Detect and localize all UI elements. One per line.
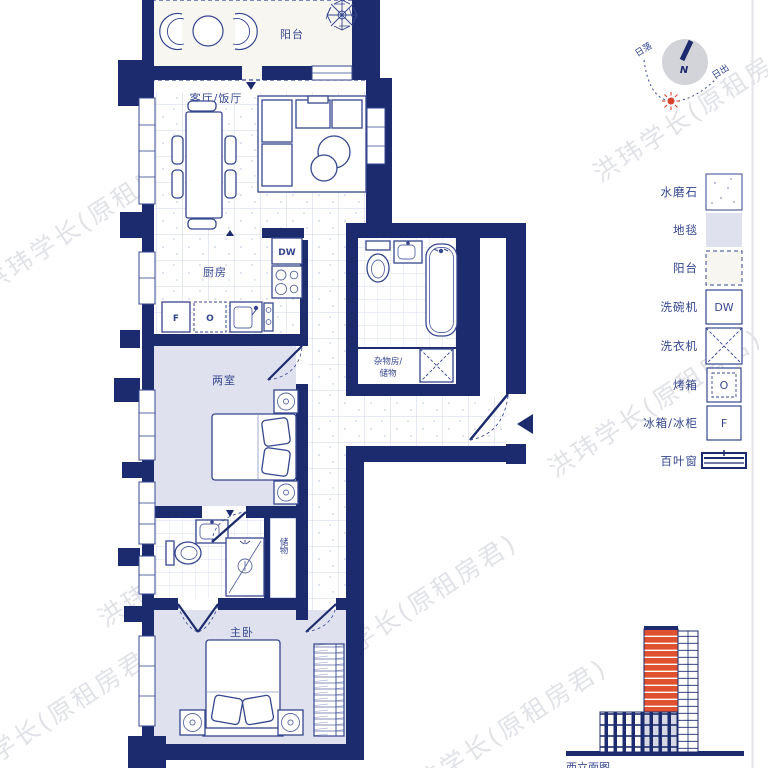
elevation-caption: 西立面图 <box>566 760 610 768</box>
annex <box>678 631 698 752</box>
legend-label: 冰箱/冰柜 <box>643 416 698 430</box>
wall-master-bottom <box>142 744 364 760</box>
legend-label: 地毯 <box>673 223 698 237</box>
legend-label: 阳台 <box>673 261 698 275</box>
balcony-swatch <box>706 251 742 285</box>
highlighted-floors <box>644 629 678 712</box>
fridge-box-letter: F <box>721 417 727 430</box>
wall-top <box>122 66 242 80</box>
pillow <box>261 447 290 476</box>
terrazzo-swatch <box>706 174 742 210</box>
wall-kitchen-stub <box>262 228 304 238</box>
sofa <box>258 96 366 192</box>
kitchen-sink-icon <box>230 302 262 332</box>
wall-master-top <box>142 598 178 610</box>
oven-icon: O <box>194 302 226 332</box>
pillow <box>242 695 274 725</box>
closet-floor <box>270 518 296 598</box>
bathroom-sink-icon <box>394 241 422 263</box>
window-master <box>139 636 155 726</box>
wall-closet-divider <box>264 518 270 598</box>
bathtub-icon <box>426 244 457 336</box>
pillow <box>261 417 290 446</box>
wall-corridor-bottom <box>346 446 526 462</box>
dining-chair <box>188 219 216 229</box>
dining-chair <box>172 136 183 164</box>
fridge-icon: F <box>162 302 190 332</box>
wall-jut <box>120 212 142 238</box>
patio-table <box>193 16 223 46</box>
sunset-label: 日落 <box>633 40 655 60</box>
window-bedroom2-lower <box>139 482 155 544</box>
hall-floor <box>308 236 346 610</box>
closet: 储物 <box>278 537 288 556</box>
tower-base-shade <box>644 712 678 752</box>
nightstand-lamp-icon <box>274 390 298 413</box>
wall-bath-right <box>456 238 480 396</box>
wall-bedroom2-top <box>142 334 308 346</box>
entry-arrow-icon <box>517 414 533 434</box>
fridge-letter: F <box>173 314 179 324</box>
floorplan-page: 洪玮学长(原租房君) 洪玮学长(原租房君) 洪玮学长(原租房君) 洪玮学长(原租… <box>0 0 768 768</box>
oven-letter: O <box>206 314 214 324</box>
master-label: 主卧 <box>230 626 254 639</box>
side-table <box>311 155 337 181</box>
podium <box>600 712 644 752</box>
shower-icon <box>226 538 264 596</box>
dishwasher-letter: DW <box>278 248 295 258</box>
dining-chair <box>172 170 183 198</box>
utility-label-line1: 杂物房/ <box>374 356 403 367</box>
dining-chair <box>188 101 216 111</box>
watermark-text: 洪玮学长(原租房君) <box>388 653 613 768</box>
wall-bedroom2-right <box>296 334 308 346</box>
oven-box: O <box>707 368 741 402</box>
legend-label: 洗衣机 <box>661 339 699 353</box>
wall-top <box>262 66 312 80</box>
legend-item-dishwasher: 洗碗机 DW <box>661 290 743 324</box>
bed <box>212 414 296 480</box>
legend: 水磨石 地毯 阳台 洗碗机 DW 洗衣机 <box>643 174 746 468</box>
window-balcony-band <box>312 66 352 80</box>
wall-top <box>352 66 380 80</box>
wall-utility-bottom <box>346 384 480 396</box>
pillow <box>211 695 243 725</box>
kitchen-cabinet <box>264 303 273 331</box>
compass-north-label: N <box>680 65 689 76</box>
kitchen-label: 厨房 <box>203 266 227 279</box>
wall-ensuite-top <box>246 506 308 518</box>
wall-master-right <box>346 610 364 750</box>
utility-label-line2: 储物 <box>379 368 397 379</box>
wall-jut <box>114 378 140 402</box>
headboard <box>203 728 283 736</box>
window-living-right <box>367 108 385 164</box>
legend-item-balcony: 阳台 <box>673 251 742 285</box>
wall-hall-right <box>346 462 364 612</box>
wardrobe-icon <box>314 644 344 736</box>
legend-label: 烤箱 <box>673 378 698 392</box>
balcony-label: 阳台 <box>280 27 304 41</box>
nightstand-lamp-icon <box>180 710 205 735</box>
wall-jut <box>120 330 140 348</box>
legend-label: 洗碗机 <box>661 300 699 314</box>
legend-item-terrazzo: 水磨石 <box>661 174 743 210</box>
window-living-left <box>139 98 155 204</box>
dining-chair <box>225 136 236 164</box>
nightstand-lamp-icon <box>274 481 298 504</box>
wall-jut <box>118 548 140 566</box>
wall-master-top <box>336 598 364 610</box>
wall-entry-right <box>506 223 526 394</box>
louver-symbol <box>702 450 746 468</box>
closet-label: 储物 <box>278 537 288 556</box>
dishwasher-box-letter: DW <box>714 301 733 314</box>
window-ensuite <box>139 556 155 594</box>
legend-label: 百叶窗 <box>661 454 699 468</box>
sun-icon <box>662 92 680 110</box>
building-elevation: 西立面图 <box>566 626 744 768</box>
dishwasher-icon: DW <box>272 238 302 264</box>
wall-bath-top <box>346 223 526 238</box>
toilet-icon <box>366 241 390 282</box>
wall-jut <box>124 606 142 622</box>
carpet-swatch <box>706 213 742 247</box>
window-kitchen <box>139 252 155 304</box>
master-bed <box>203 640 283 736</box>
stove-icon <box>272 266 302 298</box>
washer-box <box>706 328 742 364</box>
compass-circle <box>662 39 708 85</box>
legend-item-louver: 百叶窗 <box>661 450 747 468</box>
wall-jut <box>122 462 142 478</box>
bedroom2-label: 两室 <box>212 373 236 387</box>
ensuite-threshold-marker <box>226 510 234 517</box>
nightstand-lamp-icon <box>278 710 303 735</box>
window-bedroom2-upper <box>139 390 155 460</box>
wall-bath-left <box>346 238 358 396</box>
corridor-floor <box>346 396 506 446</box>
dining-chair <box>225 170 236 198</box>
ensuite-toilet-icon <box>166 541 201 565</box>
legend-item-carpet: 地毯 <box>673 213 742 247</box>
tower-roof <box>644 626 678 630</box>
oven-box-letter: O <box>720 379 729 392</box>
legend-label: 水磨石 <box>661 185 699 199</box>
balcony-door-marker <box>246 82 256 90</box>
washer-icon <box>420 349 453 382</box>
floorplan-canvas: 洪玮学长(原租房君) 洪玮学长(原租房君) 洪玮学长(原租房君) 洪玮学长(原租… <box>0 0 768 768</box>
